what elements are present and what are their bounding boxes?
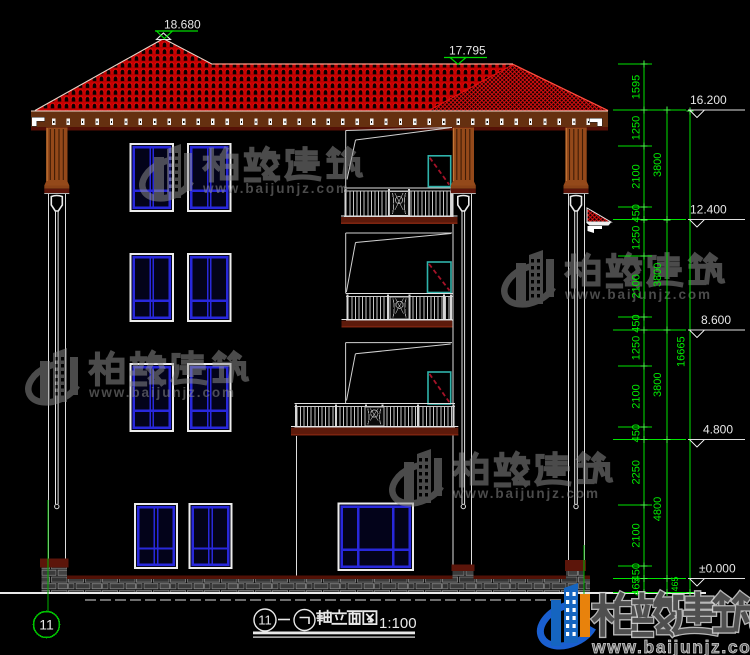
svg-text:1:100: 1:100: [379, 615, 417, 632]
svg-text:2250: 2250: [631, 460, 643, 484]
svg-text:2100: 2100: [631, 164, 643, 188]
svg-text:±0.000: ±0.000: [699, 562, 736, 576]
svg-text:465: 465: [670, 576, 680, 591]
svg-text:1595: 1595: [631, 75, 643, 99]
svg-text:4.800: 4.800: [703, 423, 733, 437]
svg-text:18.680: 18.680: [164, 18, 201, 32]
svg-text:1250: 1250: [631, 336, 643, 360]
svg-text:17.795: 17.795: [449, 44, 486, 58]
svg-text:16.200: 16.200: [690, 93, 727, 107]
svg-text:www.baijunjz.com: www.baijunjz.com: [452, 486, 600, 501]
svg-text:12.400: 12.400: [690, 203, 727, 217]
svg-text:www.baijunjz.com: www.baijunjz.com: [591, 637, 750, 655]
svg-text:www.baijunjz.com: www.baijunjz.com: [88, 385, 236, 400]
svg-text:3800: 3800: [652, 263, 664, 287]
svg-text:450: 450: [631, 204, 643, 222]
svg-text:11: 11: [39, 617, 54, 633]
svg-text:450: 450: [631, 314, 643, 332]
svg-text:1250: 1250: [631, 226, 643, 250]
svg-text:16665: 16665: [676, 336, 688, 367]
svg-text:2100: 2100: [631, 384, 643, 408]
svg-text:450: 450: [631, 424, 643, 442]
svg-text:1250: 1250: [631, 116, 643, 140]
svg-text:www.baijunjz.com: www.baijunjz.com: [202, 181, 350, 196]
svg-text:3800: 3800: [652, 372, 664, 396]
svg-text:3800: 3800: [652, 153, 664, 177]
svg-text:11: 11: [258, 613, 272, 628]
svg-text:2100: 2100: [631, 523, 643, 547]
svg-text:8.600: 8.600: [701, 313, 731, 327]
svg-text:4800: 4800: [652, 497, 664, 521]
svg-text:2100: 2100: [631, 274, 643, 298]
